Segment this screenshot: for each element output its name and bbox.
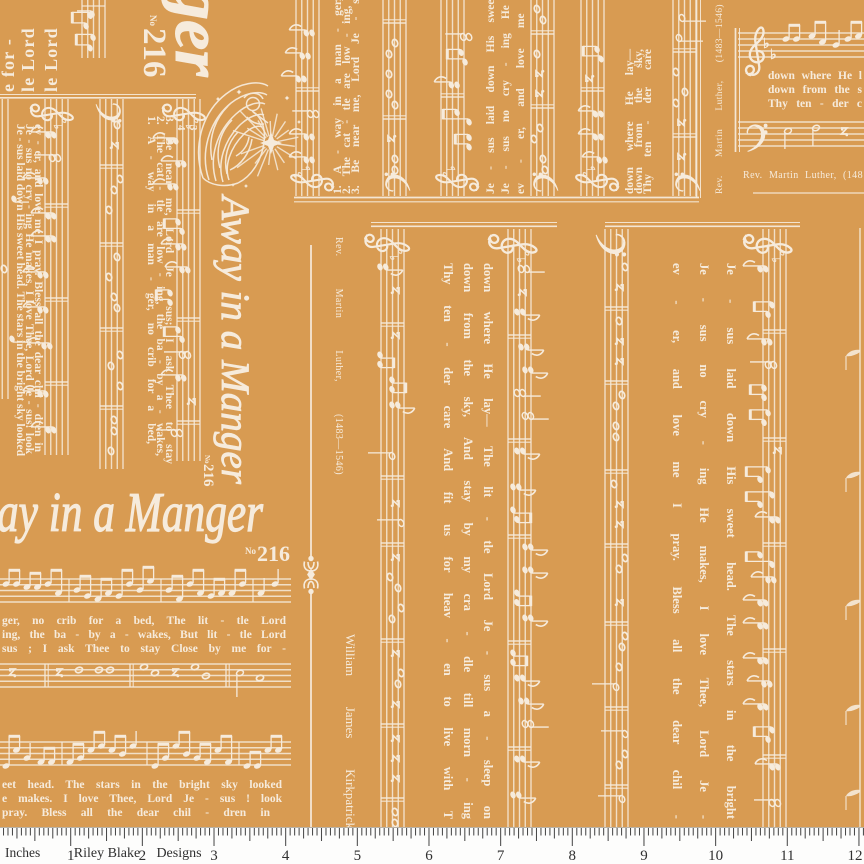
- svg-text:ing, the ba - by a - wakes, Bu: ing, the ba - by a - wakes, But lit - tl…: [2, 629, 287, 641]
- svg-text:Thy ten - der c: Thy ten - der c: [768, 98, 862, 110]
- svg-text:3: 3: [187, 125, 199, 131]
- svg-text:Je - sus no cry - ing He makes: Je - sus no cry - ing He makes, I love T…: [500, 0, 512, 194]
- svg-text:10: 10: [708, 848, 723, 864]
- svg-text:Riley Blake: Riley Blake: [74, 846, 141, 861]
- svg-text:Thy ten - der care And fit us: Thy ten - der care And fit us for heav -…: [441, 263, 455, 820]
- svg-text:e makes. I love Thee, Lord Je: e makes. I love Thee, Lord Je - sus ! lo…: [2, 793, 283, 805]
- svg-text:Away in a Manger: Away in a Manger: [213, 193, 258, 484]
- svg-text:♭: ♭: [763, 37, 770, 52]
- svg-text:12: 12: [847, 848, 862, 864]
- svg-text:7: 7: [497, 848, 505, 864]
- svg-text:♭: ♭: [578, 171, 590, 176]
- svg-text:♭: ♭: [446, 165, 458, 170]
- svg-text:♭: ♭: [301, 165, 313, 170]
- svg-text:ger, no crib for a bed, The li: ger, no crib for a bed, The lit - tle Lo…: [2, 615, 287, 627]
- svg-text:Inches: Inches: [5, 845, 40, 860]
- svg-text:down where He l: down where He l: [768, 70, 862, 82]
- svg-text:le Lord: le Lord: [41, 27, 61, 92]
- svg-text:3. Be near me, Lord Je - sus;: 3. Be near me, Lord Je - sus; I ask Thee…: [350, 0, 362, 194]
- svg-text:le Lord: le Lord: [18, 27, 38, 92]
- svg-text:3: 3: [210, 848, 218, 864]
- svg-text:Je - sus laid down His sweet h: Je - sus laid down His sweet head. The s…: [724, 263, 738, 820]
- svg-text:6: 6: [425, 848, 433, 864]
- svg-text:4: 4: [282, 848, 290, 864]
- svg-text:9: 9: [640, 848, 648, 864]
- svg-text:5: 5: [354, 848, 362, 864]
- svg-text:ger: ger: [161, 0, 237, 77]
- svg-text:4: 4: [175, 125, 187, 131]
- svg-text:ev - er, and love me I pray. B: ev - er, and love me I pray. Bless all t…: [670, 263, 684, 819]
- svg-text:♭: ♭: [395, 249, 407, 254]
- svg-text:pray. Bless all the dear chil: pray. Bless all the dear chil - dren in: [2, 807, 271, 819]
- svg-text:ev - er, and love me I pray. B: ev - er, and love me I pray. Bless all: [515, 0, 527, 194]
- svg-text:♭: ♭: [59, 119, 71, 124]
- svg-text:sus ; I ask Thee to stay Close: sus ; I ask Thee to stay Close by me for…: [2, 643, 286, 655]
- svg-text:♭: ♭: [293, 171, 305, 176]
- svg-text:down from the s: down from the s: [768, 84, 863, 96]
- svg-text:♭: ♭: [438, 171, 450, 176]
- svg-text:Je - sus laid down His sweet h: Je - sus laid down His sweet head. The s…: [485, 0, 497, 194]
- svg-text:8: 8: [569, 848, 577, 864]
- svg-text:Designs: Designs: [156, 846, 201, 861]
- svg-text:e for -: e for -: [0, 38, 18, 92]
- svg-text:♭: ♭: [522, 251, 534, 256]
- svg-text:11: 11: [780, 848, 794, 864]
- svg-text:♭: ♭: [387, 255, 399, 260]
- svg-text:♭: ♭: [770, 48, 777, 63]
- svg-text:down where He lay— The lit - t: down where He lay— The lit - tle Lord Je…: [481, 263, 495, 819]
- svg-text:♭: ♭: [777, 251, 789, 256]
- svg-text:♭: ♭: [586, 165, 598, 170]
- svg-text:Rev. Martin Luther, (1483—1546: Rev. Martin Luther, (1483—1546): [714, 4, 725, 194]
- svg-text:down from the sky, And stay by: down from the sky, And stay by my cra - …: [461, 263, 475, 820]
- svg-text:3. Be near me, Lord Je - sus;: 3. Be near me, Lord Je - sus; I ask Thee…: [163, 116, 175, 464]
- svg-text:ay in a Manger: ay in a Manger: [0, 482, 263, 544]
- svg-text:Rev. Martin Luther, (1483—1546: Rev. Martin Luther, (1483—1546): [333, 237, 344, 475]
- svg-text:Thy ten - der care: Thy ten - der care: [642, 49, 654, 194]
- svg-text:Rev. Martin Luther, (148: Rev. Martin Luther, (148: [743, 170, 863, 181]
- svg-text:♭: ♭: [51, 124, 63, 129]
- svg-text:ev - er, and love me I pray. B: ev - er, and love me I pray. Bless all t…: [32, 124, 44, 453]
- svg-text:♭: ♭: [769, 258, 781, 263]
- svg-text:William James Kirkpatrick: William James Kirkpatrick: [343, 634, 358, 829]
- svg-text:♭: ♭: [514, 258, 526, 263]
- svg-text:eet head. The stars in the bri: eet head. The stars in the bright sky lo…: [2, 779, 283, 791]
- svg-text:Je - sus no cry - ing He makes: Je - sus no cry - ing He makes, I love T…: [697, 263, 711, 819]
- svg-text:♭: ♭: [191, 119, 203, 124]
